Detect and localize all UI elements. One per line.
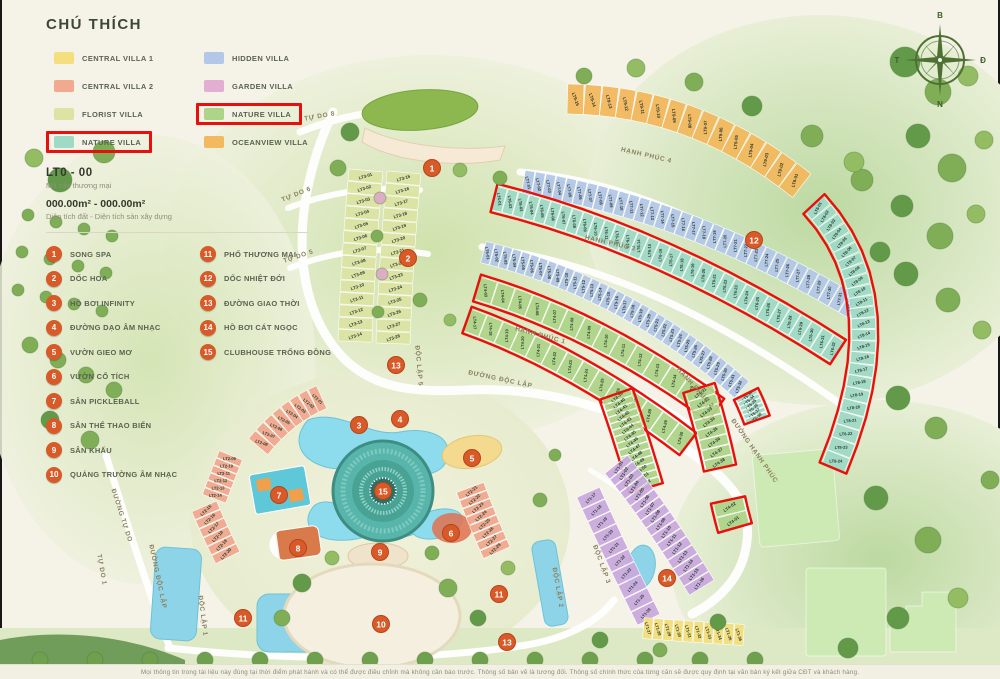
svg-text:10: 10 (376, 620, 386, 630)
lot-label: LT5-13 (589, 283, 595, 297)
legend-item-highlighted: NATURE VILLA (196, 103, 302, 125)
amenity-marker-8: 8 (290, 540, 307, 557)
tree (425, 546, 439, 560)
lot-label: LT6-08 (571, 215, 577, 229)
tree (936, 288, 960, 312)
legend-item: FLORIST VILLA (46, 103, 154, 125)
tree (891, 195, 913, 217)
lot-label: LT8-22 (839, 431, 853, 437)
svg-text:4: 4 (398, 415, 403, 425)
amenity-column-1: 1SONG SPA2DỐC HOA3HỒ BƠI INFINITY4ĐƯỜNG … (46, 246, 192, 483)
tree (372, 306, 384, 318)
amenity-marker-13: 13 (499, 634, 516, 651)
tree (685, 73, 703, 91)
svg-text:5: 5 (470, 454, 475, 464)
compass-south-label: N (937, 100, 943, 108)
amenity-item: 7SÂN PICKLEBALL (46, 393, 192, 409)
amenity-marker-13: 13 (388, 357, 405, 374)
amenity-marker-11: 11 (491, 586, 508, 603)
amenity-list: 1SONG SPA2DỐC HOA3HỒ BƠI INFINITY4ĐƯỜNG … (46, 246, 346, 483)
tree (576, 68, 592, 84)
amenity-marker-3: 3 (351, 417, 368, 434)
legend-item-label: OCEANVIEW VILLA (232, 138, 308, 147)
unit-code-caption: Mã căn thương mại (46, 181, 346, 190)
tree (592, 632, 608, 648)
tree (870, 242, 890, 262)
amenity-label: HỒ BƠI INFINITY (70, 299, 135, 308)
lot-label: LT8-23 (835, 445, 849, 450)
lot-label: LT4-06 (535, 303, 540, 317)
lot-label: LT4-21 (535, 343, 541, 357)
amenity-item: 1SONG SPA (46, 246, 192, 262)
lot-label: LT6-20 (700, 268, 706, 282)
tree (844, 152, 864, 172)
legend-item: OCEANVIEW VILLA (196, 131, 319, 153)
tree (887, 607, 909, 629)
amenity-label: SÂN KHẤU (70, 446, 112, 455)
lot-label: LT7-15 (670, 214, 676, 228)
lot-label: LT7-13 (649, 207, 655, 221)
tree (653, 643, 667, 657)
amenity-item: 3HỒ BƠI INFINITY (46, 295, 192, 311)
tree (376, 268, 388, 280)
tree (25, 149, 43, 167)
legend-swatch (54, 52, 74, 64)
amenity-marker-6: 6 (443, 525, 460, 542)
amenity-number-badge: 7 (46, 393, 62, 409)
svg-text:14: 14 (662, 574, 672, 584)
legend-item-label: NATURE VILLA (232, 110, 291, 119)
amenity-item: 13ĐƯỜNG GIAO THỜI (200, 295, 346, 311)
legend-swatch (54, 80, 74, 92)
lot-label: LT6-16 (657, 248, 662, 262)
lot-label: LT4-17 (472, 316, 477, 330)
tree (439, 579, 457, 597)
legend-swatch (204, 52, 224, 64)
tree (864, 486, 888, 510)
amenity-number-badge: 6 (46, 369, 62, 385)
tree (470, 610, 486, 626)
amenity-label: VƯỜN CỔ TÍCH (70, 372, 130, 381)
lot-label: LT7-21 (733, 238, 738, 252)
lot-label: LT2-14 (209, 493, 223, 498)
tree (16, 246, 28, 258)
amenity-item: 15CLUBHOUSE TRỐNG ĐỒNG (200, 344, 346, 360)
tree (627, 59, 645, 77)
unit-area-caption: Diện tích đất - Diện tích sàn xây dựng (46, 212, 346, 221)
amenity-marker-10: 10 (373, 616, 390, 633)
tree (948, 588, 968, 608)
masterplan-page: LT9-15LT9-14LT9-13LT9-12LT9-11LT9-10LT9-… (0, 0, 1000, 679)
legend-title: CHÚ THÍCH (46, 16, 346, 33)
amenity-number-badge: 9 (46, 442, 62, 458)
amenity-label: SÂN THỂ THAO BIỂN (70, 421, 151, 430)
lot-label: LT9-08 (687, 114, 692, 129)
tree (293, 574, 311, 592)
tree (981, 471, 999, 489)
compass-west-label: T (895, 56, 900, 65)
lot-label: LT4-20 (520, 335, 526, 349)
amenity-item: 14HỒ BƠI CÁT NGỌC (200, 320, 346, 336)
amenity-item: 6VƯỜN CỔ TÍCH (46, 369, 192, 385)
legend-item: HIDDEN VILLA (196, 47, 300, 69)
lot-label: LT6-14 (636, 239, 641, 253)
amenity-number-badge: 13 (200, 295, 216, 311)
legend-item-label: CENTRAL VILLA 2 (82, 82, 153, 91)
unit-info-sample: LT0 - 00 Mã căn thương mại 000.00m² - 00… (46, 167, 346, 221)
legend-swatch (204, 108, 224, 120)
amenity-label: QUẢNG TRƯỜNG ÂM NHẠC (70, 470, 177, 479)
svg-text:8: 8 (296, 544, 301, 554)
svg-text:13: 13 (502, 638, 512, 648)
lot-label: LT4-18 (488, 323, 493, 337)
amenity-number-badge: 3 (46, 295, 62, 311)
amenity-item: 2DỐC HOA (46, 271, 192, 287)
tree (938, 154, 966, 182)
amenity-marker-7: 7 (271, 487, 288, 504)
lot-label: LT9-07 (703, 120, 708, 134)
tree (906, 124, 930, 148)
tree (801, 125, 823, 147)
amenity-marker-14: 14 (659, 570, 676, 587)
tree (894, 262, 918, 286)
compass-east-label: Đ (980, 56, 986, 65)
amenity-number-badge: 5 (46, 344, 62, 360)
amenity-number-badge: 14 (200, 320, 216, 336)
legend-item-label: FLORIST VILLA (82, 110, 143, 119)
legend-item-label: HIDDEN VILLA (232, 54, 289, 63)
amenity-item: 9SÂN KHẤU (46, 442, 192, 458)
amenity-number-badge: 12 (200, 271, 216, 287)
tree (413, 293, 427, 307)
lot-label: LT6-06 (550, 208, 556, 222)
lot-label: LT8-24 (829, 459, 843, 464)
compass-north-label: B (937, 11, 943, 20)
lot-label: LT7-23 (753, 248, 759, 262)
lot-label: LT4-04 (500, 290, 506, 304)
lot-label: LT4-19 (504, 328, 509, 342)
tree (371, 230, 383, 242)
svg-text:13: 13 (391, 361, 401, 371)
legend-item-label: GARDEN VILLA (232, 82, 293, 91)
svg-text:7: 7 (277, 491, 282, 501)
lot-label: LT6-07 (561, 211, 567, 225)
svg-text:3: 3 (357, 421, 362, 431)
tree (501, 561, 515, 575)
amenity-number-badge: 15 (200, 344, 216, 360)
amenity-number-badge: 10 (46, 467, 62, 483)
amenity-marker-2: 2 (400, 250, 417, 267)
tree (915, 527, 941, 553)
amenity-number-badge: 8 (46, 418, 62, 434)
tree (274, 610, 290, 626)
legend-swatch (204, 136, 224, 148)
lot-label: LT6-15 (647, 243, 652, 257)
unit-area-sample: 000.00m² - 000.00m² (46, 198, 346, 210)
legend-swatch (204, 80, 224, 92)
tree (710, 614, 726, 630)
tree (973, 321, 991, 339)
tree (444, 314, 456, 326)
amenity-label: PHỐ THƯƠNG MẠI (224, 250, 296, 259)
tree (12, 284, 24, 296)
disclaimer-text: Mọi thông tin trong tài liệu này đúng tạ… (141, 669, 859, 676)
amenity-label: HỒ BƠI CÁT NGỌC (224, 323, 298, 332)
amenity-item: 8SÂN THỂ THAO BIỂN (46, 418, 192, 434)
lot-label: LT5-07 (538, 263, 544, 277)
tree (927, 223, 953, 249)
lot-label: LT7-19 (712, 230, 717, 244)
lot-label: LT4-09 (586, 325, 592, 339)
svg-text:9: 9 (378, 548, 383, 558)
lot-label: LT6-10 (593, 223, 598, 237)
legend-swatch (54, 136, 74, 148)
lot-label: LT7-18 (702, 226, 707, 240)
lot-label: LT5-06 (529, 260, 535, 274)
compass-rose: B Đ N T (890, 8, 990, 108)
lot-label: LT5-08 (547, 266, 552, 280)
amenity-label: ĐƯỜNG GIAO THỜI (224, 299, 300, 308)
svg-text:15: 15 (378, 487, 388, 497)
amenity-column-2: 11PHỐ THƯƠNG MẠI12DỐC NHIỆT ĐỚI13ĐƯỜNG G… (200, 246, 346, 483)
legend-item: CENTRAL VILLA 1 (46, 47, 164, 69)
lot-label: LT6-19 (689, 263, 695, 277)
lot-label: LT5-14 (597, 287, 603, 301)
amenity-label: SÂN PICKLEBALL (70, 397, 140, 406)
svg-text:11: 11 (239, 614, 248, 624)
amenity-marker-12: 12 (746, 232, 763, 249)
lot-label: LT2-13 (212, 485, 226, 490)
amenity-number-badge: 1 (46, 246, 62, 262)
amenity-label: VƯỜN GIEO MƠ (70, 348, 132, 357)
lot-label: LT4-05 (517, 296, 522, 310)
amenity-item: 4ĐƯỜNG DẠO ÂM NHẠC (46, 320, 192, 336)
amenity-number-badge: 4 (46, 320, 62, 336)
tree (742, 96, 762, 116)
lot-label: LT4-07 (552, 309, 557, 323)
amenity-label: ĐƯỜNG DẠO ÂM NHẠC (70, 323, 161, 332)
amenity-number-badge: 11 (200, 246, 216, 262)
lot-label: LT9-06 (718, 127, 724, 142)
legend-item-label: CENTRAL VILLA 1 (82, 54, 153, 63)
unit-code-sample: LT0 - 00 (46, 167, 346, 179)
tree (838, 638, 858, 658)
panel-divider (46, 232, 308, 233)
tree (925, 417, 947, 439)
legend-item-highlighted: NATURE VILLA (46, 131, 152, 153)
disclaimer-bar: Mọi thông tin trong tài liệu này đúng tạ… (0, 664, 1000, 679)
tree (975, 131, 993, 149)
lot-label: LT5-11 (572, 276, 577, 289)
amenity-item: 12DỐC NHIỆT ĐỚI (200, 271, 346, 287)
tree (325, 551, 339, 565)
legend-panel: CHÚ THÍCH CENTRAL VILLA 1CENTRAL VILLA 2… (46, 16, 346, 483)
amenity-item: 5VƯỜN GIEO MƠ (46, 344, 192, 360)
tree (493, 171, 507, 185)
svg-text:11: 11 (495, 590, 504, 600)
amenity-marker-1: 1 (424, 160, 441, 177)
lot-label: LT5-12 (580, 279, 585, 293)
amenity-marker-5: 5 (464, 450, 481, 467)
legend-column-1: CENTRAL VILLA 1CENTRAL VILLA 2FLORIST VI… (46, 47, 192, 153)
lot-label: LT5-09 (555, 269, 560, 283)
lot-label: LT7-14 (660, 211, 666, 225)
amenity-number-badge: 2 (46, 271, 62, 287)
lot-label: LT7-16 (681, 218, 686, 232)
lot-label: LT4-08 (569, 317, 575, 331)
amenity-label: SONG SPA (70, 250, 111, 259)
tree (533, 493, 547, 507)
lot-label: LT7-25 (774, 258, 780, 272)
tree (453, 163, 467, 177)
svg-text:1: 1 (430, 164, 435, 174)
legend-item-label: NATURE VILLA (82, 138, 141, 147)
amenity-label: CLUBHOUSE TRỐNG ĐỒNG (224, 348, 331, 357)
legend-item: GARDEN VILLA (196, 75, 304, 97)
amenity-marker-4: 4 (392, 411, 409, 428)
amenity-label: DỐC HOA (70, 274, 108, 283)
tree (22, 209, 34, 221)
tree (374, 192, 386, 204)
svg-text:2: 2 (406, 254, 411, 264)
lot-label: LT7-12 (639, 204, 645, 218)
tree (549, 449, 561, 461)
tree (22, 337, 38, 353)
tree (886, 386, 910, 410)
legend-column-2: HIDDEN VILLAGARDEN VILLANATURE VILLAOCEA… (196, 47, 342, 153)
legend-grid: CENTRAL VILLA 1CENTRAL VILLA 2FLORIST VI… (46, 47, 346, 153)
amenity-label: DỐC NHIỆT ĐỚI (224, 274, 285, 283)
amenity-item: 10QUẢNG TRƯỜNG ÂM NHẠC (46, 467, 192, 483)
lot-label: LT6-09 (582, 219, 588, 233)
tree (967, 205, 985, 223)
amenity-marker-15: 15 (375, 483, 392, 500)
lot-label: LT7-20 (722, 234, 727, 248)
lot-label: LT6-18 (679, 258, 685, 272)
lot-label: LT5-05 (520, 257, 526, 271)
amenity-item: 11PHỐ THƯƠNG MẠI (200, 246, 346, 262)
lot-label: LT6-17 (668, 253, 674, 267)
legend-swatch (54, 108, 74, 120)
lot-label: LT5-10 (564, 272, 569, 286)
amenity-marker-11: 11 (235, 610, 252, 627)
lot-label: LT7-17 (691, 222, 696, 236)
svg-text:6: 6 (449, 529, 454, 539)
amenity-marker-9: 9 (372, 544, 389, 561)
legend-item: CENTRAL VILLA 2 (46, 75, 164, 97)
lot-label: LT7-24 (764, 253, 770, 267)
svg-text:12: 12 (749, 236, 759, 246)
